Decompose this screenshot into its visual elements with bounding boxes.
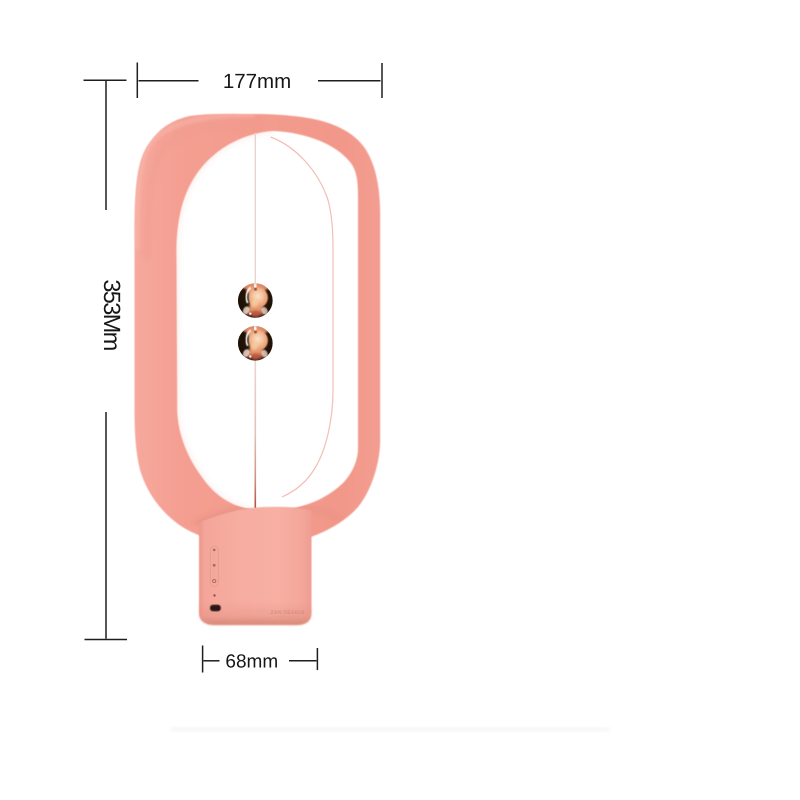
svg-text:353Mm: 353Mm bbox=[99, 279, 125, 350]
svg-text:ZAN DESIGN: ZAN DESIGN bbox=[271, 610, 305, 616]
svg-text:68mm: 68mm bbox=[225, 652, 278, 673]
svg-text:177mm: 177mm bbox=[223, 70, 291, 93]
